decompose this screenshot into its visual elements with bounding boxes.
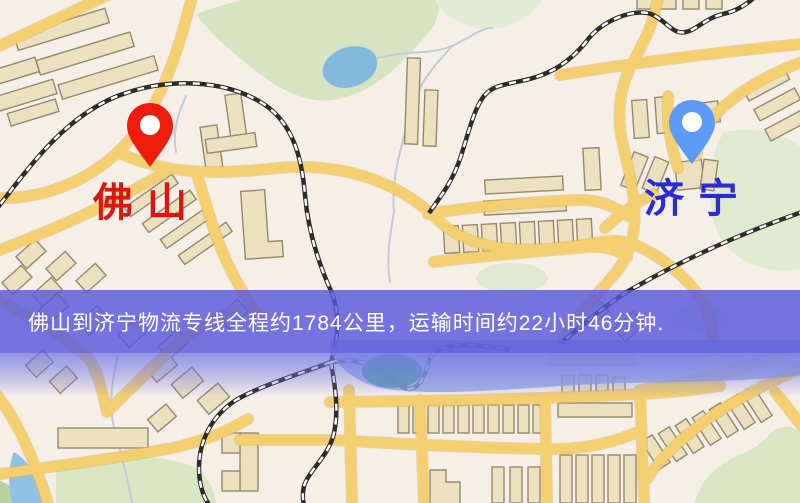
route-banner: 佛山到济宁物流专线全程约1784公里，运输时间约22小时46分钟. (0, 290, 800, 353)
origin-city-label: 佛山 (93, 183, 201, 223)
map-canvas (0, 0, 800, 503)
destination-pin-icon (664, 97, 720, 167)
origin-pin-icon (122, 100, 178, 170)
destination-city-label: 济宁 (644, 179, 752, 219)
route-banner-text: 佛山到济宁物流专线全程约1784公里，运输时间约22小时46分钟. (0, 307, 664, 337)
route-map-image: 佛山 济宁 佛山到济宁物流专线全程约1784公里，运输时间约22小时46分钟. (0, 0, 800, 503)
